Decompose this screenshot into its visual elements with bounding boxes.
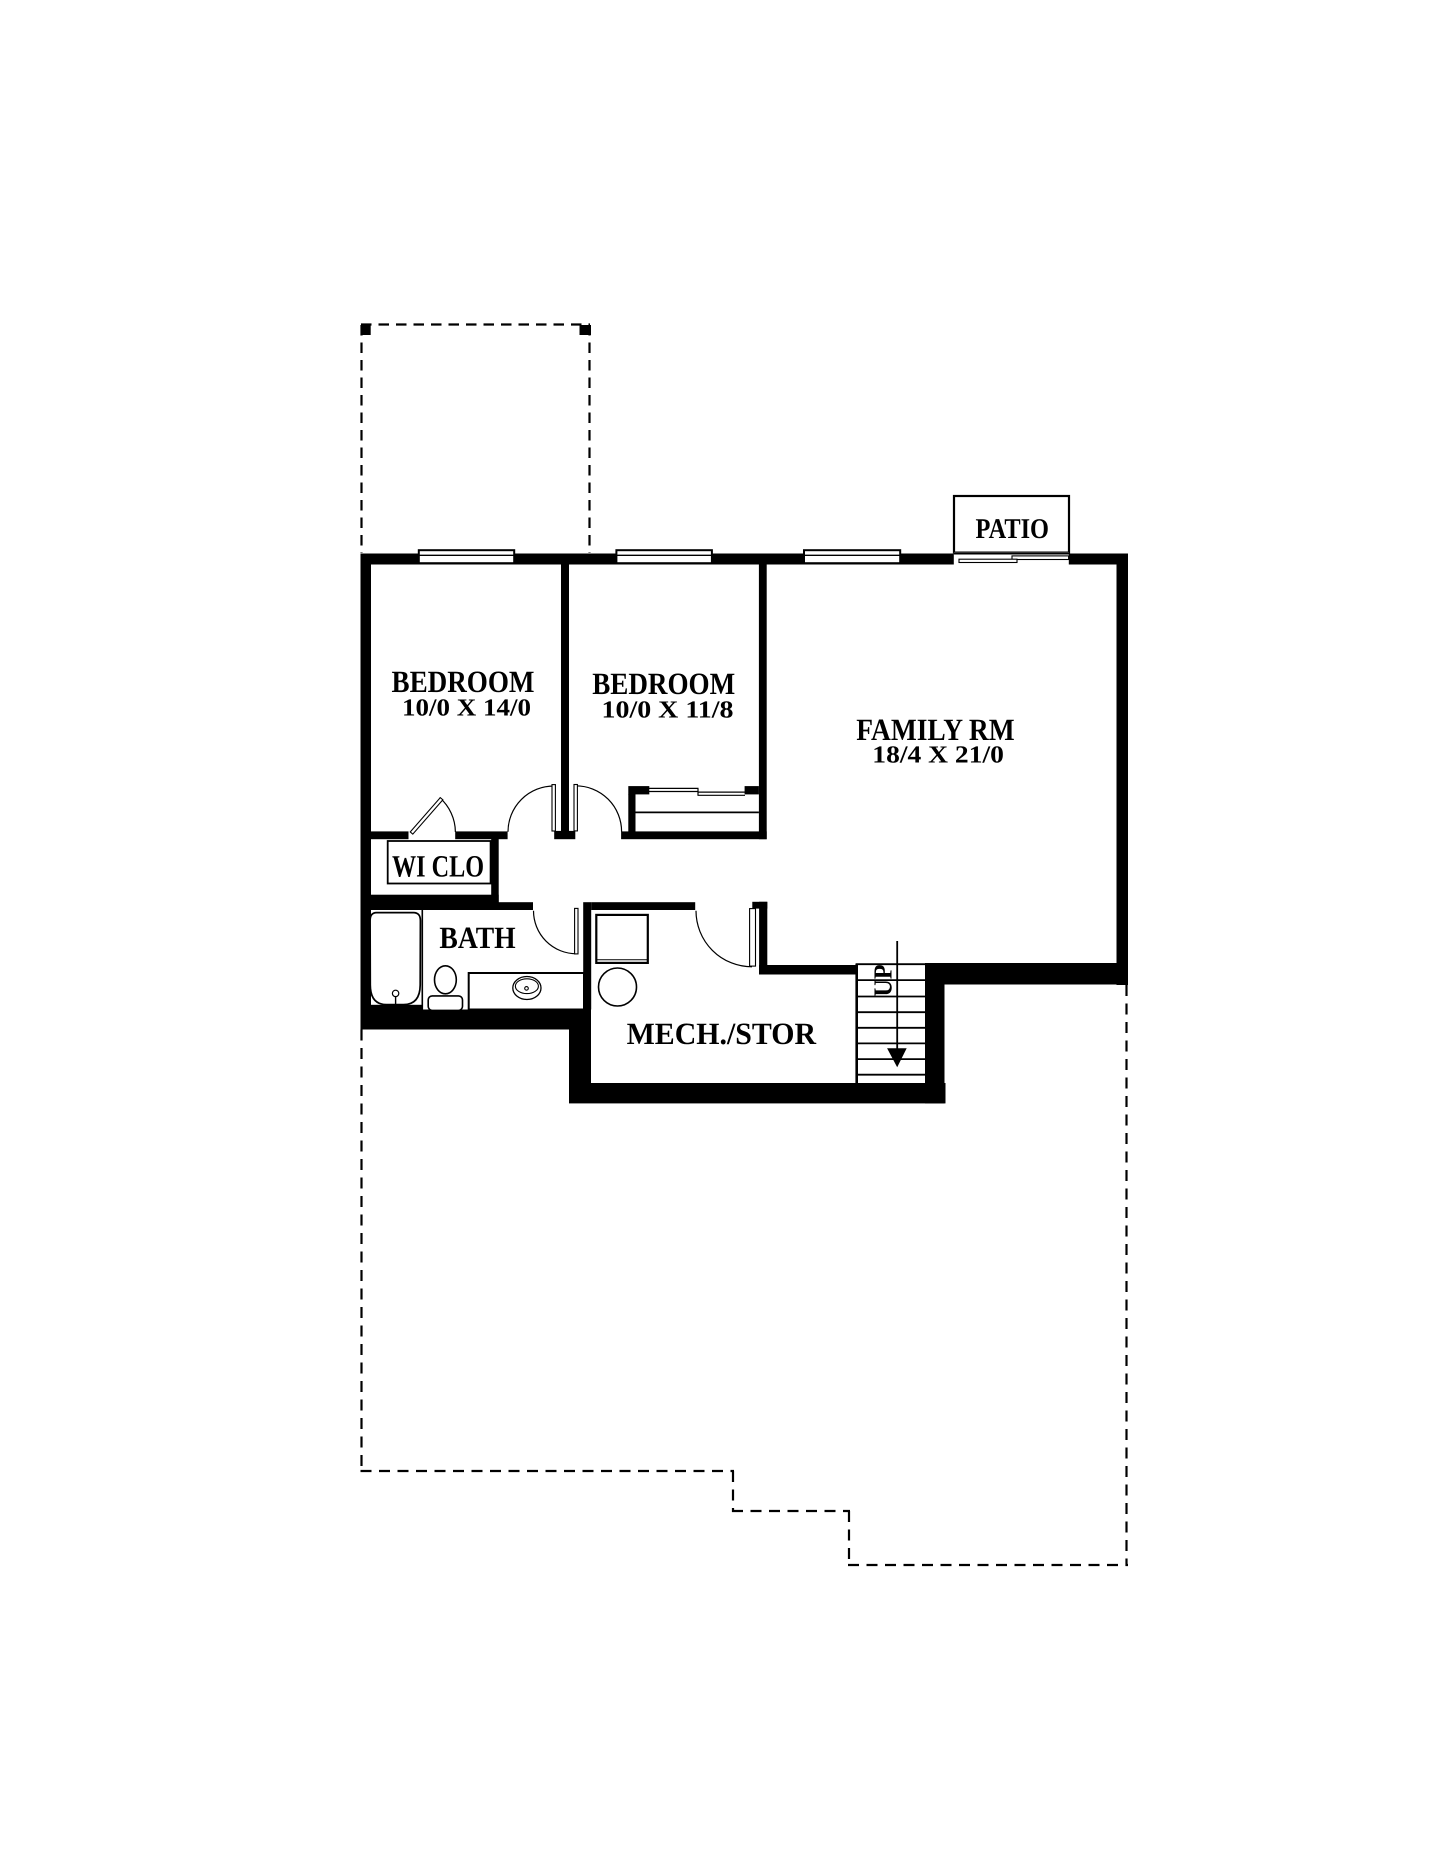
svg-text:WI CLO: WI CLO bbox=[392, 848, 484, 883]
svg-text:18/4 X 21/0: 18/4 X 21/0 bbox=[872, 742, 1004, 769]
svg-text:MECH./STOR: MECH./STOR bbox=[627, 1016, 817, 1051]
svg-text:10/0 X 14/0: 10/0 X 14/0 bbox=[402, 694, 531, 721]
svg-text:UP: UP bbox=[869, 964, 898, 996]
svg-text:10/0 X 11/8: 10/0 X 11/8 bbox=[602, 697, 734, 724]
svg-text:BATH: BATH bbox=[439, 920, 515, 955]
svg-text:PATIO: PATIO bbox=[976, 514, 1050, 545]
